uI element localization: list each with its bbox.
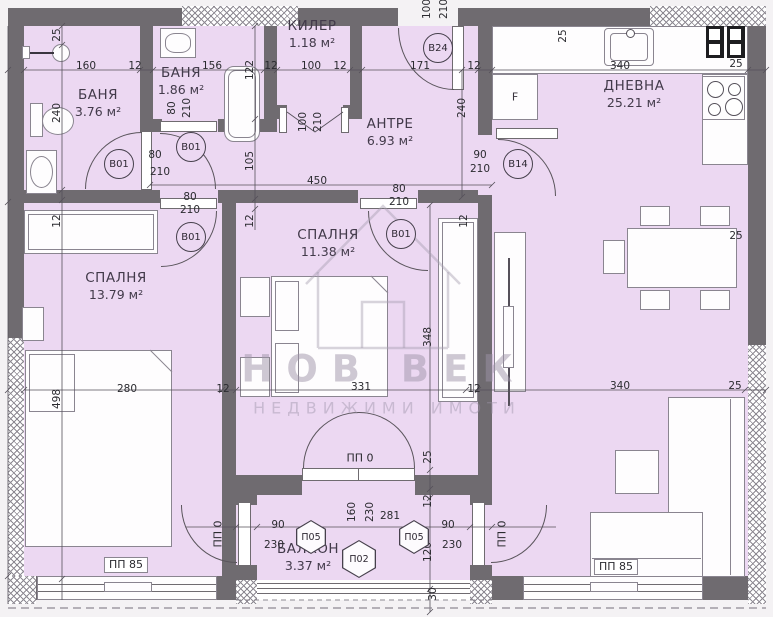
- wall-segment: [415, 475, 492, 495]
- opening-label: ПП 0: [346, 452, 373, 465]
- shaft-pane: [709, 44, 720, 55]
- dining-chair: [700, 206, 730, 226]
- living-window: [523, 576, 703, 600]
- insulation-hatch: [748, 345, 766, 604]
- dimension-label: 100: [297, 112, 309, 132]
- railing-line: [257, 583, 470, 584]
- dimension-label: 12: [333, 60, 346, 72]
- dimension-label: 12: [128, 60, 141, 72]
- wall-segment: [236, 475, 302, 495]
- dimension-label: 25: [557, 29, 569, 42]
- dimension-label: 210: [150, 166, 170, 178]
- wall-segment: [748, 8, 766, 345]
- shaft-pane: [730, 44, 741, 55]
- dining-chair: [640, 206, 670, 226]
- dimension-label: 240: [51, 103, 63, 123]
- stove-burner: [728, 83, 741, 96]
- dimension-label: 498: [51, 389, 63, 409]
- wardrobe-bedroom2-inner: [442, 222, 474, 398]
- bedroom1-window: [37, 576, 217, 600]
- fridge-label: F: [512, 91, 518, 104]
- dimension-label: 90: [473, 149, 486, 161]
- dimension-label: 25: [51, 28, 63, 41]
- shaft-pane: [709, 29, 720, 40]
- floor-plan-canvas: F НОВ ВЕК НЕДВИЖИМИ ИМОТИ БАНЯ3.76 м²БАН…: [0, 0, 773, 617]
- dimension-label: 25: [729, 230, 742, 242]
- opening-label: ПП 0: [496, 520, 509, 547]
- panel-badge-text: П05: [297, 521, 324, 552]
- dimension-label: 25: [729, 58, 742, 70]
- wall-segment: [298, 8, 398, 26]
- dining-chair: [700, 290, 730, 310]
- closet-door-jamb: [341, 107, 349, 133]
- door-badge-b24: B24: [423, 33, 453, 63]
- insulation-hatch: [470, 580, 492, 604]
- window-mullion: [590, 582, 638, 592]
- dimension-label: 80: [392, 183, 405, 195]
- bath2-door-leaf: [160, 121, 217, 132]
- dimension-label: 210: [180, 204, 200, 216]
- insulation-hatch: [182, 6, 298, 26]
- opening-label: ПП 85: [594, 559, 638, 575]
- dimension-label: 230: [364, 502, 376, 522]
- dimension-label: 30: [427, 587, 439, 600]
- insulation-hatch: [650, 6, 766, 26]
- pillow-bedroom2-b: [275, 343, 299, 393]
- wall-segment: [140, 26, 153, 132]
- door-badge-b01: B01: [176, 132, 206, 162]
- dimension-label: 156: [202, 60, 222, 72]
- balcony-left-door-leaf: [238, 502, 251, 566]
- wall-segment: [478, 26, 492, 135]
- wall-segment: [703, 576, 748, 600]
- panel-badge-text: П02: [343, 541, 374, 576]
- stove-burner: [725, 98, 743, 116]
- sofa-back-line: [730, 399, 731, 575]
- opening-label: ПП 85: [104, 557, 148, 573]
- panel-badge-text: П05: [400, 521, 427, 552]
- wall-segment: [217, 576, 236, 600]
- dimension-label: 25: [728, 380, 741, 392]
- dimension-label: 210: [181, 98, 193, 118]
- balcony-right-door-leaf: [472, 502, 485, 566]
- door-badge-b01: B01: [386, 219, 416, 249]
- dimension-label: 12: [264, 60, 277, 72]
- bath2-sink-basin: [165, 33, 191, 53]
- dimension-label: 280: [117, 383, 137, 395]
- wall-segment: [418, 190, 478, 203]
- faucet-dot: [626, 29, 635, 38]
- dimension-label: 122: [244, 60, 256, 80]
- dimension-label: 331: [351, 381, 371, 393]
- dimension-label: 210: [470, 163, 490, 175]
- dimension-label: 90: [441, 519, 454, 531]
- dimension-label: 100: [301, 60, 321, 72]
- dimension-label: 450: [307, 175, 327, 187]
- bathtub-inner: [228, 70, 256, 138]
- insulation-hatch: [8, 338, 24, 576]
- dimension-label: 12: [51, 214, 63, 227]
- dimension-label: 210: [438, 0, 450, 19]
- dimension-label: 12: [467, 60, 480, 72]
- dimension-label: 240: [456, 98, 468, 118]
- wall-segment: [264, 26, 277, 132]
- tv-screen: [503, 306, 514, 368]
- dimension-label: 90: [271, 519, 284, 531]
- dimension-label: 12: [458, 214, 470, 227]
- dimension-label: 12: [467, 383, 480, 395]
- dimension-label: 348: [422, 327, 434, 347]
- nightstand-bedroom2-a: [240, 277, 270, 317]
- nightstand-bedroom2-b: [240, 357, 270, 397]
- dimension-label: 12: [422, 494, 434, 507]
- wall-segment: [218, 190, 358, 203]
- door-badge-b14: B14: [503, 149, 533, 179]
- wall-segment: [10, 8, 182, 26]
- door-badge-b01: B01: [104, 149, 134, 179]
- dining-table: [627, 228, 737, 288]
- stove-burner: [708, 103, 721, 116]
- shower-arm: [26, 52, 54, 54]
- pillow-bedroom2-a: [275, 281, 299, 331]
- dimension-label: 80: [148, 149, 161, 161]
- bath1-sink-basin: [30, 156, 53, 188]
- dimension-label: 210: [312, 112, 324, 132]
- closet-door-jamb: [279, 107, 287, 133]
- nightstand-bedroom1: [22, 307, 44, 341]
- dimension-label: 100: [421, 0, 433, 19]
- dimension-label: 105: [244, 151, 256, 171]
- dimension-label: 80: [183, 191, 196, 203]
- double-door-split: [358, 468, 359, 481]
- door-badge-b01: B01: [176, 222, 206, 252]
- dimension-label: 80: [166, 101, 178, 114]
- window-mullion: [104, 582, 152, 592]
- dimension-label: 25: [422, 450, 434, 463]
- dimension-label: 12: [244, 214, 256, 227]
- shower-head: [52, 44, 70, 62]
- stove-burner: [707, 81, 724, 98]
- dining-chair: [640, 290, 670, 310]
- coffee-table: [615, 450, 659, 494]
- dimension-label: 340: [610, 60, 630, 72]
- living-door-leaf: [496, 128, 558, 139]
- wall-segment: [478, 195, 492, 475]
- shaft-pane: [730, 29, 741, 40]
- dimension-label: 12: [216, 383, 229, 395]
- dimension-label: 230: [264, 539, 284, 551]
- dimension-label: 210: [389, 196, 409, 208]
- dimension-label: 230: [442, 539, 462, 551]
- wardrobe-bedroom1-inner: [28, 214, 154, 250]
- insulation-hatch: [236, 580, 257, 604]
- opening-label: ПП 0: [212, 520, 225, 547]
- wall-segment: [492, 576, 523, 600]
- dimension-label: 160: [346, 502, 358, 522]
- wall-segment: [458, 8, 650, 26]
- dimension-label: 281: [380, 510, 400, 522]
- dimension-label: 340: [610, 380, 630, 392]
- shower-valve: [22, 46, 30, 59]
- dining-chair: [603, 240, 625, 274]
- insulation-hatch: [8, 576, 36, 604]
- dimension-label: 171: [410, 60, 430, 72]
- dimension-label: 160: [76, 60, 96, 72]
